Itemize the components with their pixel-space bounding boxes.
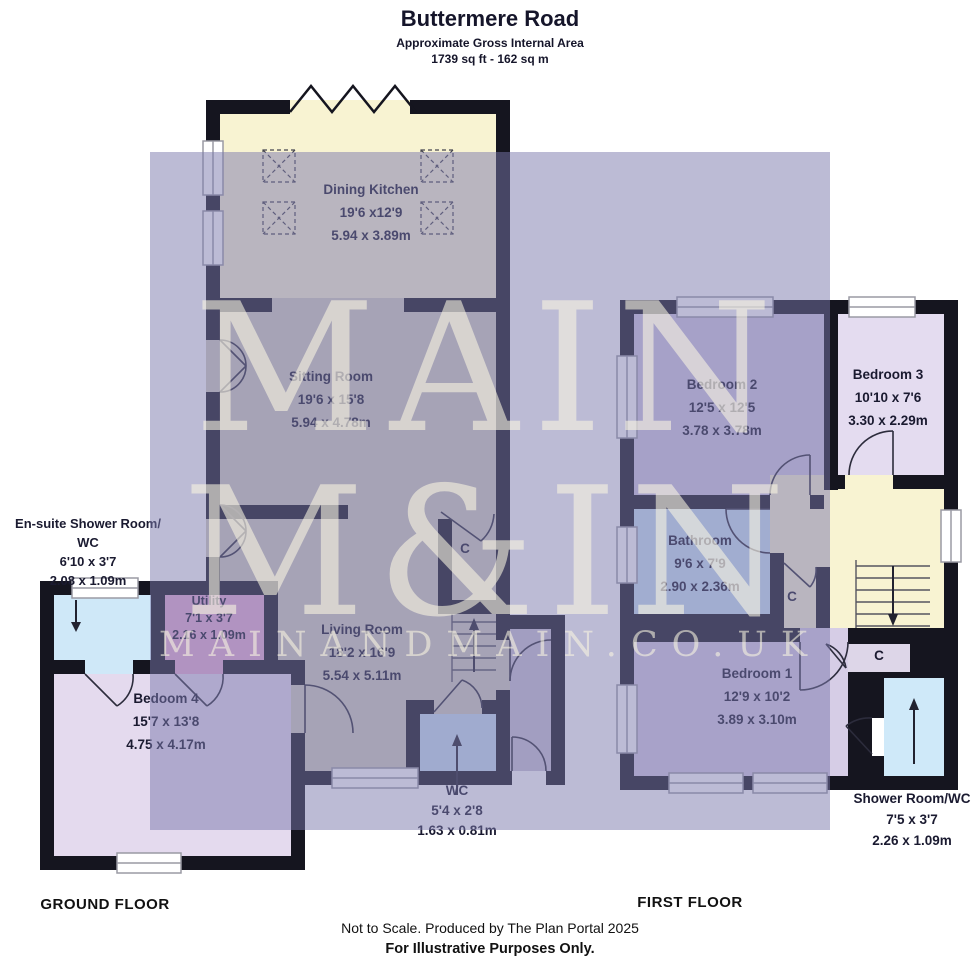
- room-size-imperial: 12'9 x 10'2: [672, 685, 842, 708]
- room-size-metric: 1.63 x 0.81m: [372, 821, 542, 841]
- room-name: Living Room: [277, 618, 447, 641]
- room-label-dining-kitchen: Dining Kitchen 19'6 x12'9 5.94 x 3.89m: [286, 178, 456, 247]
- room-size-imperial: 19'6 x12'9: [286, 201, 456, 224]
- room-label-bathroom: Bathroom 9'6 x 7'9 2.90 x 2.36m: [615, 529, 785, 598]
- room-name-line2: WC: [2, 533, 174, 552]
- room-name: Shower Room/WC: [812, 788, 980, 809]
- cupboard-label-ground: C: [450, 541, 480, 556]
- cupboard-label-first-b: C: [864, 648, 894, 663]
- room-size-metric: 2.26 x 1.09m: [812, 830, 980, 851]
- room-name: En-suite Shower Room/: [2, 514, 174, 533]
- room-size-metric: 3.89 x 3.10m: [672, 708, 842, 731]
- room-name: WC: [372, 781, 542, 801]
- footer-illustrative-note: For Illustrative Purposes Only.: [0, 941, 980, 957]
- room-label-wc: WC 5'4 x 2'8 1.63 x 0.81m: [372, 781, 542, 841]
- room-size-metric: 2.90 x 2.36m: [615, 575, 785, 598]
- room-size-imperial: 9'6 x 7'9: [615, 552, 785, 575]
- room-label-bedroom-4: Bedoom 4 15'7 x 13'8 4.75 x 4.17m: [81, 687, 251, 756]
- room-name: Bathroom: [615, 529, 785, 552]
- room-label-ensuite: En-suite Shower Room/ WC 6'10 x 3'7 2.08…: [2, 514, 174, 590]
- room-name: Utility: [154, 593, 264, 610]
- room-label-shower-room: Shower Room/WC 7'5 x 3'7 2.26 x 1.09m: [812, 788, 980, 851]
- room-name: Bedroom 3: [803, 363, 973, 386]
- room-size-imperial: 10'10 x 7'6: [803, 386, 973, 409]
- room-size-metric: 2.08 x 1.09m: [2, 571, 174, 590]
- room-size-imperial: 18'2 x 16'9: [277, 641, 447, 664]
- room-size-imperial: 7'1 x 3'7: [154, 610, 264, 627]
- room-label-bedroom-3: Bedroom 3 10'10 x 7'6 3.30 x 2.29m: [803, 363, 973, 432]
- room-size-metric: 5.94 x 3.89m: [286, 224, 456, 247]
- ground-floor-label: GROUND FLOOR: [25, 896, 185, 913]
- floorplan-page: Buttermere Road Approximate Gross Intern…: [0, 0, 980, 978]
- room-size-metric: 5.94 x 4.78m: [246, 411, 416, 434]
- room-size-metric: 5.54 x 5.11m: [277, 664, 447, 687]
- room-size-imperial: 6'10 x 3'7: [2, 552, 174, 571]
- room-name: Sitting Room: [246, 365, 416, 388]
- room-name: Bedroom 2: [637, 373, 807, 396]
- room-size-metric: 2.16 x 1.09m: [154, 627, 264, 644]
- shower-door-gap: [872, 718, 884, 756]
- room-size-imperial: 5'4 x 2'8: [372, 801, 542, 821]
- room-name: Bedoom 4: [81, 687, 251, 710]
- room-size-metric: 3.30 x 2.29m: [803, 409, 973, 432]
- room-label-bedroom-1: Bedroom 1 12'9 x 10'2 3.89 x 3.10m: [672, 662, 842, 731]
- room-label-sitting-room: Sitting Room 19'6 x 15'8 5.94 x 4.78m: [246, 365, 416, 434]
- room-size-metric: 3.78 x 3.78m: [637, 419, 807, 442]
- room-label-bedroom-2: Bedroom 2 12'5 x 12'5 3.78 x 3.78m: [637, 373, 807, 442]
- room-name: Dining Kitchen: [286, 178, 456, 201]
- cupboard-label-first-a: C: [777, 589, 807, 604]
- room-size-imperial: 12'5 x 12'5: [637, 396, 807, 419]
- room-size-metric: 4.75 x 4.17m: [81, 733, 251, 756]
- room-size-imperial: 15'7 x 13'8: [81, 710, 251, 733]
- room-label-living-room: Living Room 18'2 x 16'9 5.54 x 5.11m: [277, 618, 447, 687]
- footer-disclaimer: Not to Scale. Produced by The Plan Porta…: [0, 920, 980, 936]
- room-name: Bedroom 1: [672, 662, 842, 685]
- first-floor-label: FIRST FLOOR: [620, 894, 760, 911]
- room-size-imperial: 19'6 x 15'8: [246, 388, 416, 411]
- room-size-imperial: 7'5 x 3'7: [812, 809, 980, 830]
- room-label-utility: Utility 7'1 x 3'7 2.16 x 1.09m: [154, 593, 264, 644]
